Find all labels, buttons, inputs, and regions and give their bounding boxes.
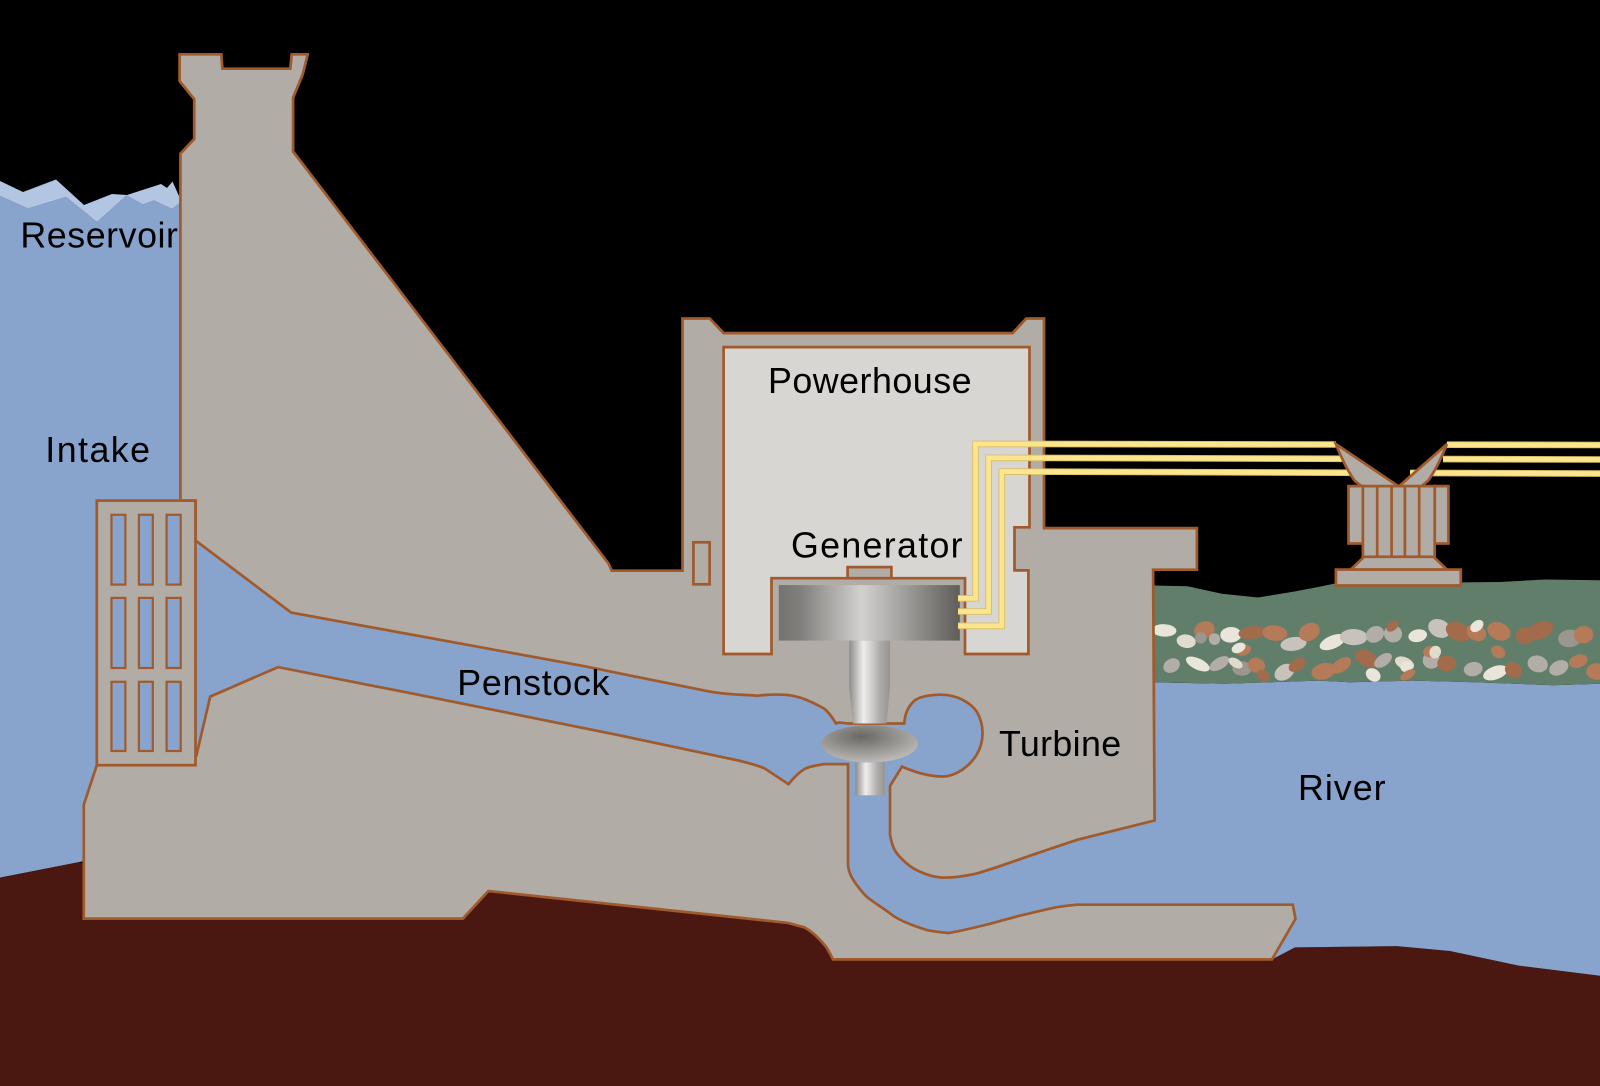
svg-text:Reservoir: Reservoir: [20, 216, 178, 256]
svg-text:Turbine: Turbine: [999, 724, 1122, 764]
svg-text:River: River: [1298, 768, 1387, 808]
svg-text:Intake: Intake: [45, 430, 151, 470]
svg-text:Generator: Generator: [791, 526, 964, 566]
svg-text:Penstock: Penstock: [457, 663, 610, 703]
svg-text:Powerhouse: Powerhouse: [768, 361, 972, 401]
